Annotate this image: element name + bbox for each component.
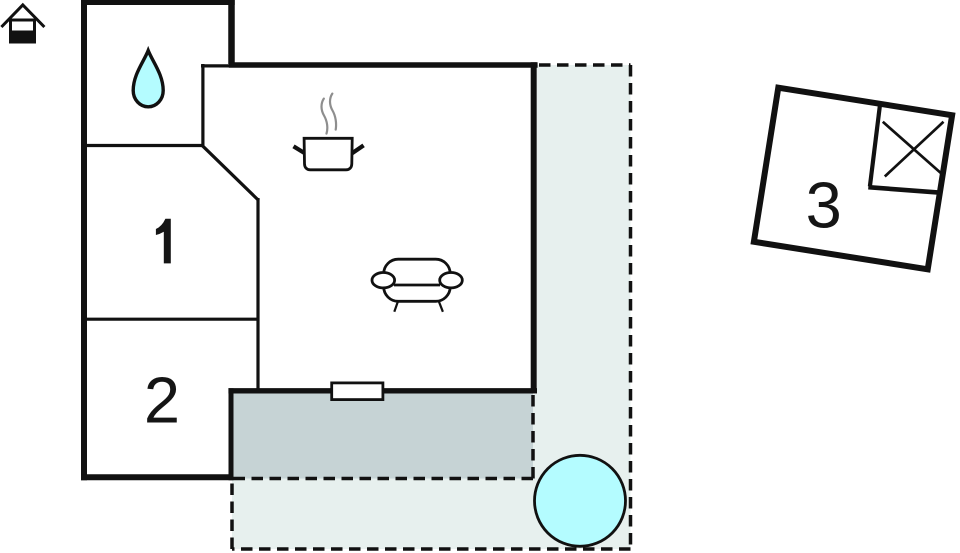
svg-text:3: 3: [806, 169, 842, 242]
svg-text:2: 2: [144, 363, 180, 436]
